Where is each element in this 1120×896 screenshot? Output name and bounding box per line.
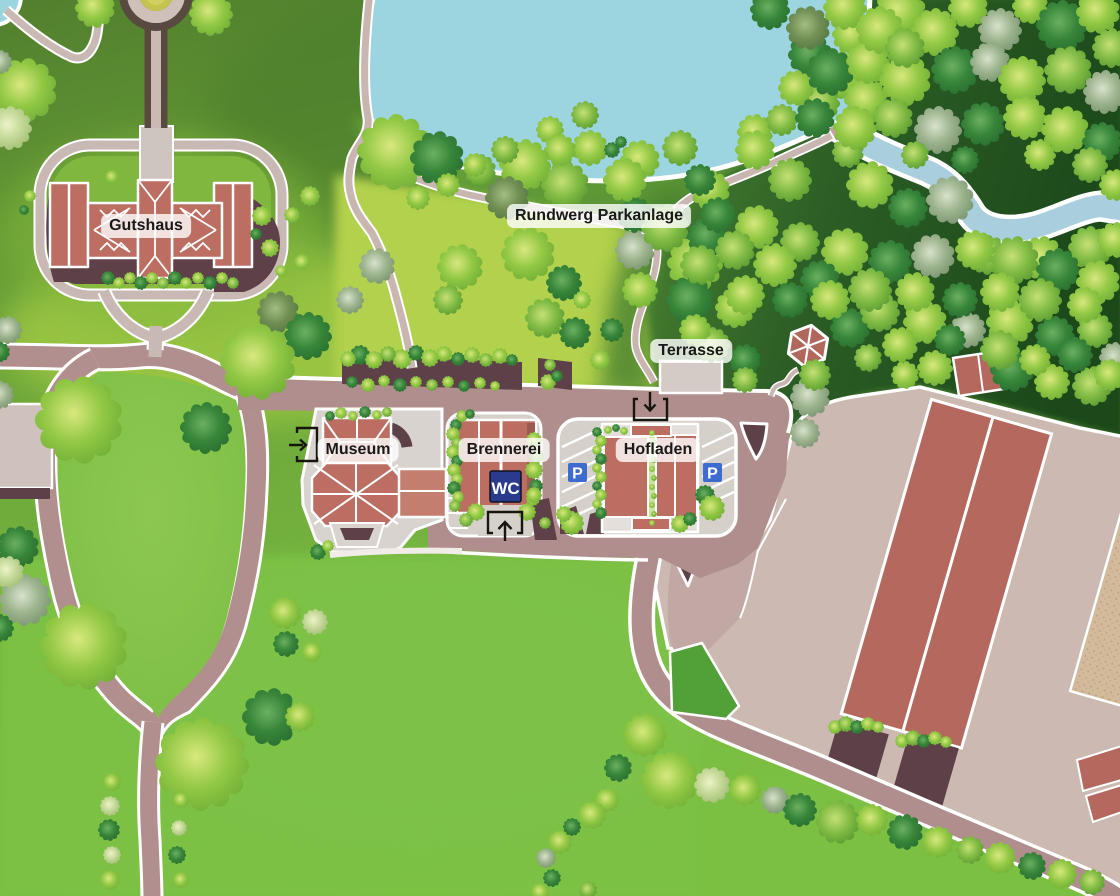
svg-text:P: P bbox=[572, 466, 583, 483]
svg-text:P: P bbox=[707, 466, 718, 483]
svg-text:WC: WC bbox=[491, 479, 519, 498]
